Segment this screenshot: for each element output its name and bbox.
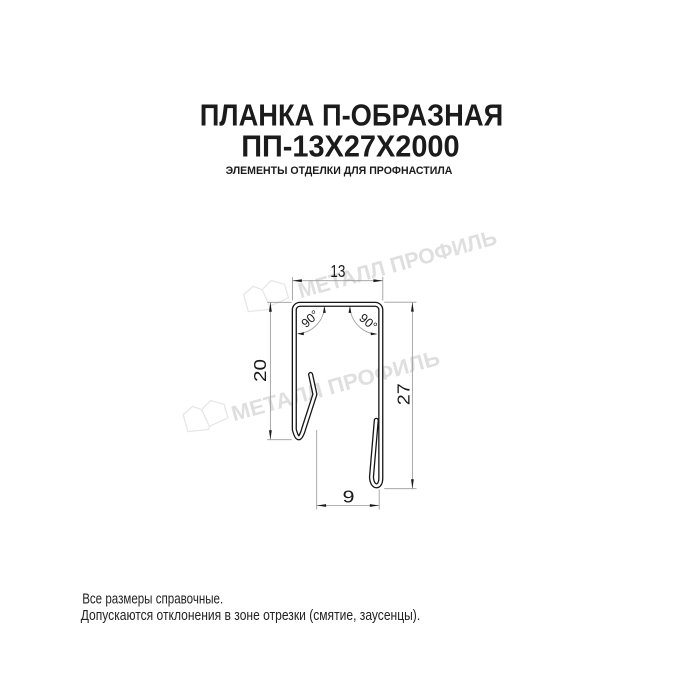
svg-text:9: 9 [343, 487, 355, 507]
svg-text:ПП-13Х27Х2000: ПП-13Х27Х2000 [241, 128, 459, 163]
svg-text:Допускаются отклонения в зоне: Допускаются отклонения в зоне отрезки (с… [81, 608, 421, 624]
svg-text:27: 27 [394, 383, 414, 405]
svg-text:13: 13 [330, 261, 345, 281]
svg-text:ЭЛЕМЕНТЫ ОТДЕЛКИ ДЛЯ ПРОФНАСТИ: ЭЛЕМЕНТЫ ОТДЕЛКИ ДЛЯ ПРОФНАСТИЛА [226, 165, 453, 177]
svg-text:20: 20 [250, 359, 270, 382]
svg-text:Все размеры справочные.: Все размеры справочные. [82, 592, 223, 608]
svg-text:ПЛАНКА П-ОБРАЗНАЯ: ПЛАНКА П-ОБРАЗНАЯ [200, 97, 503, 132]
